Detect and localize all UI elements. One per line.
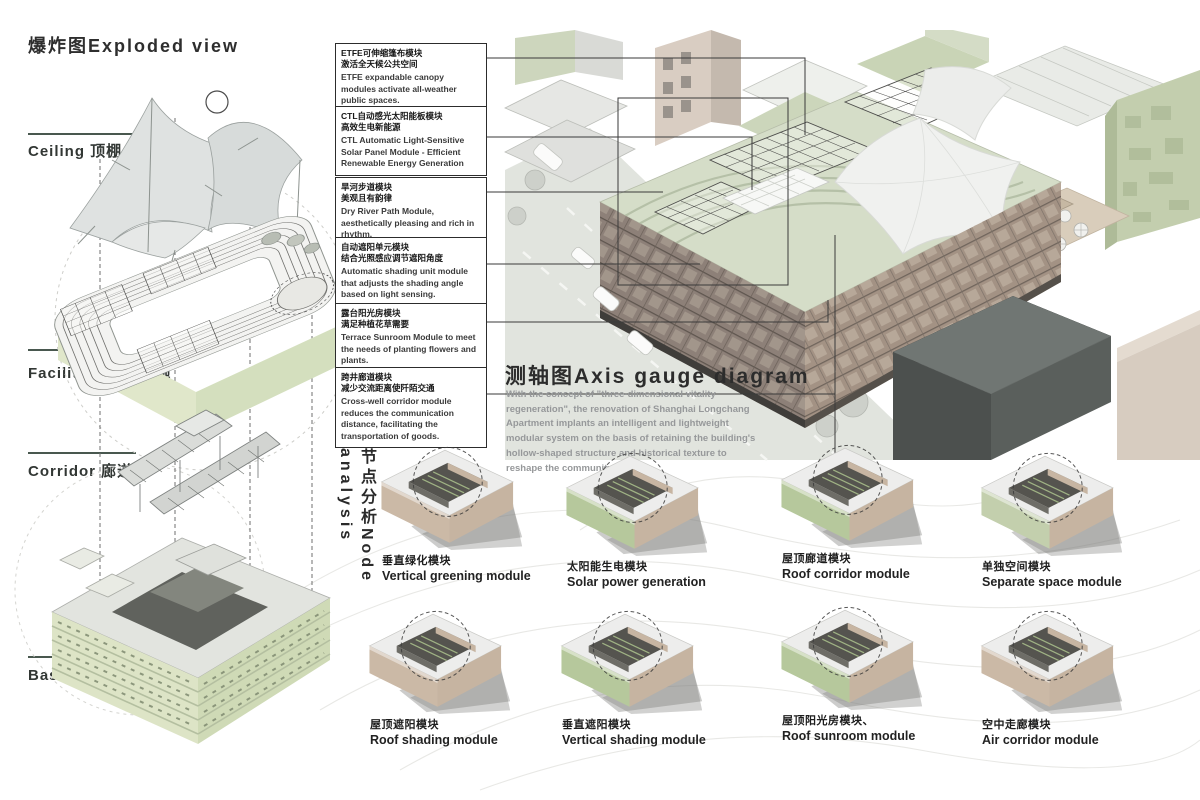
annotation-zh: 结合光照感应调节遮阳角度	[341, 253, 481, 264]
module-card-roof-sunroom: 屋顶阳光房模块、 Roof sunroom module	[760, 592, 955, 743]
annotation-zh: 露台阳光房模块	[341, 308, 481, 319]
module-en-label: Separate space module	[982, 575, 1155, 589]
annotation-zh: 自动遮阳单元模块	[341, 242, 481, 253]
module-zh-label: 垂直绿化模块	[382, 552, 555, 568]
annotation-zh: 跨井廊道模块	[341, 372, 481, 383]
annotation-en: Terrace Sunroom Module to meet the needs…	[341, 332, 481, 366]
module-en-label: Air corridor module	[982, 733, 1155, 747]
annotation-en: Dry River Path Module, aesthetically ple…	[341, 206, 481, 240]
annotation-zh: 美观且有韵律	[341, 193, 481, 204]
module-thumbnail	[960, 596, 1130, 714]
module-card-separate-space: 单独空间模块 Separate space module	[960, 438, 1155, 589]
module-zh-label: 垂直遮阳模块	[562, 716, 735, 732]
module-thumbnail	[540, 596, 710, 714]
module-thumbnail	[360, 432, 530, 550]
annotation-en: Automatic shading unit module that adjus…	[341, 266, 481, 300]
module-en-label: Vertical shading module	[562, 733, 735, 747]
exploded-axon-graphic	[0, 0, 350, 760]
module-zh-label: 屋顶阳光房模块、	[782, 712, 955, 728]
module-zh-label: 空中走廊模块	[982, 716, 1155, 732]
annotation-zh: 旱河步道模块	[341, 182, 481, 193]
annotation-zh: 减少交流距离使阡陌交通	[341, 383, 481, 394]
module-thumbnail	[760, 592, 930, 710]
module-zh-label: 单独空间模块	[982, 558, 1155, 574]
annotation-zh: 满足种植花草需要	[341, 319, 481, 330]
annotation-en: CTL Automatic Light-Sensitive Solar Pane…	[341, 135, 481, 169]
module-card-solar-power: 太阳能生电模块 Solar power generation	[545, 438, 740, 589]
module-zh-label: 屋顶廊道模块	[782, 550, 955, 566]
module-zh-label: 太阳能生电模块	[567, 558, 740, 574]
annotation-zh: 激活全天候公共空间	[341, 59, 481, 70]
module-thumbnail	[960, 438, 1130, 556]
module-en-label: Roof shading module	[370, 733, 543, 747]
annotation-auto-shading: 自动遮阳单元模块 结合光照感应调节遮阳角度 Automatic shading …	[335, 237, 487, 307]
module-en-label: Roof corridor module	[782, 567, 955, 581]
module-card-roof-shading: 屋顶遮阳模块 Roof shading module	[348, 596, 543, 747]
annotation-terrace-sunroom: 露台阳光房模块 满足种植花草需要 Terrace Sunroom Module …	[335, 303, 487, 373]
annotation-zh: ETFE可伸缩篷布模块	[341, 48, 481, 59]
annotation-en: ETFE expandable canopy modules activate …	[341, 72, 481, 106]
module-thumbnail	[545, 438, 715, 556]
module-card-vertical-greening: 垂直绿化模块 Vertical greening module	[360, 432, 555, 583]
module-en-label: Vertical greening module	[382, 569, 555, 583]
annotation-ctl-solar: CTL自动感光太阳能板模块 高效生电新能源 CTL Automatic Ligh…	[335, 106, 487, 176]
module-thumbnail	[760, 430, 930, 548]
axis-gauge-title: 测轴图Axis gauge diagram	[505, 360, 810, 390]
module-card-roof-corridor: 屋顶廊道模块 Roof corridor module	[760, 430, 955, 581]
module-en-label: Solar power generation	[567, 575, 740, 589]
basic-building	[52, 538, 330, 744]
module-zh-label: 屋顶遮阳模块	[370, 716, 543, 732]
corridor-trusses	[118, 410, 280, 514]
annotation-etfe-canopy: ETFE可伸缩篷布模块 激活全天候公共空间 ETFE expandable ca…	[335, 43, 487, 113]
annotation-zh: 高效生电新能源	[341, 122, 481, 133]
module-card-air-corridor: 空中走廊模块 Air corridor module	[960, 596, 1155, 747]
module-card-vertical-shading: 垂直遮阳模块 Vertical shading module	[540, 596, 735, 747]
annotation-zh: CTL自动感光太阳能板模块	[341, 111, 481, 122]
module-en-label: Roof sunroom module	[782, 729, 955, 743]
module-thumbnail	[348, 596, 518, 714]
